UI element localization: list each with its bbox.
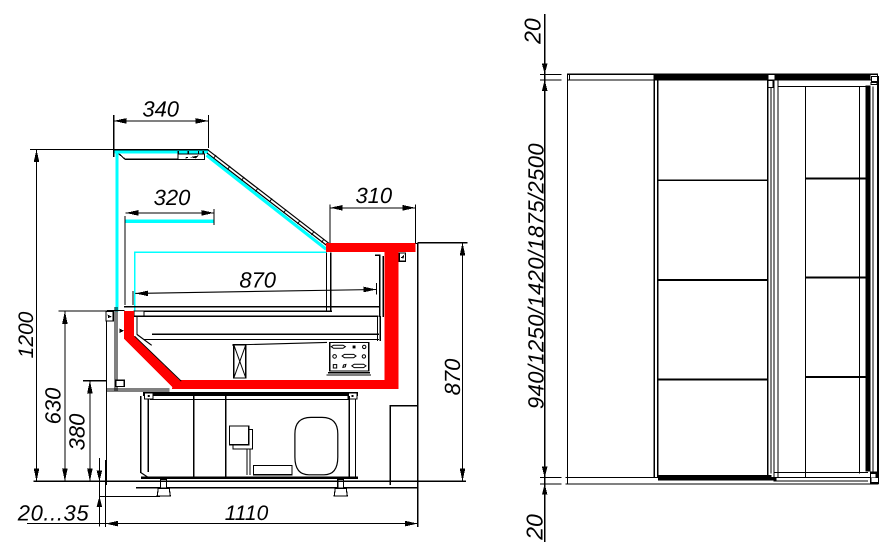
svg-text:870: 870 <box>440 358 465 395</box>
svg-text:320: 320 <box>154 185 191 210</box>
svg-text:310: 310 <box>355 183 392 208</box>
svg-text:630: 630 <box>40 387 65 424</box>
svg-text:1200: 1200 <box>15 311 38 358</box>
svg-text:340: 340 <box>142 96 179 121</box>
svg-text:20: 20 <box>520 18 546 45</box>
svg-text:380: 380 <box>64 413 89 450</box>
svg-text:1110: 1110 <box>225 502 269 525</box>
svg-text:20: 20 <box>522 514 548 541</box>
svg-text:870: 870 <box>239 268 276 293</box>
svg-text:940/1250/1420/1875/2500: 940/1250/1420/1875/2500 <box>524 143 549 409</box>
svg-text:20...35: 20...35 <box>17 501 90 526</box>
